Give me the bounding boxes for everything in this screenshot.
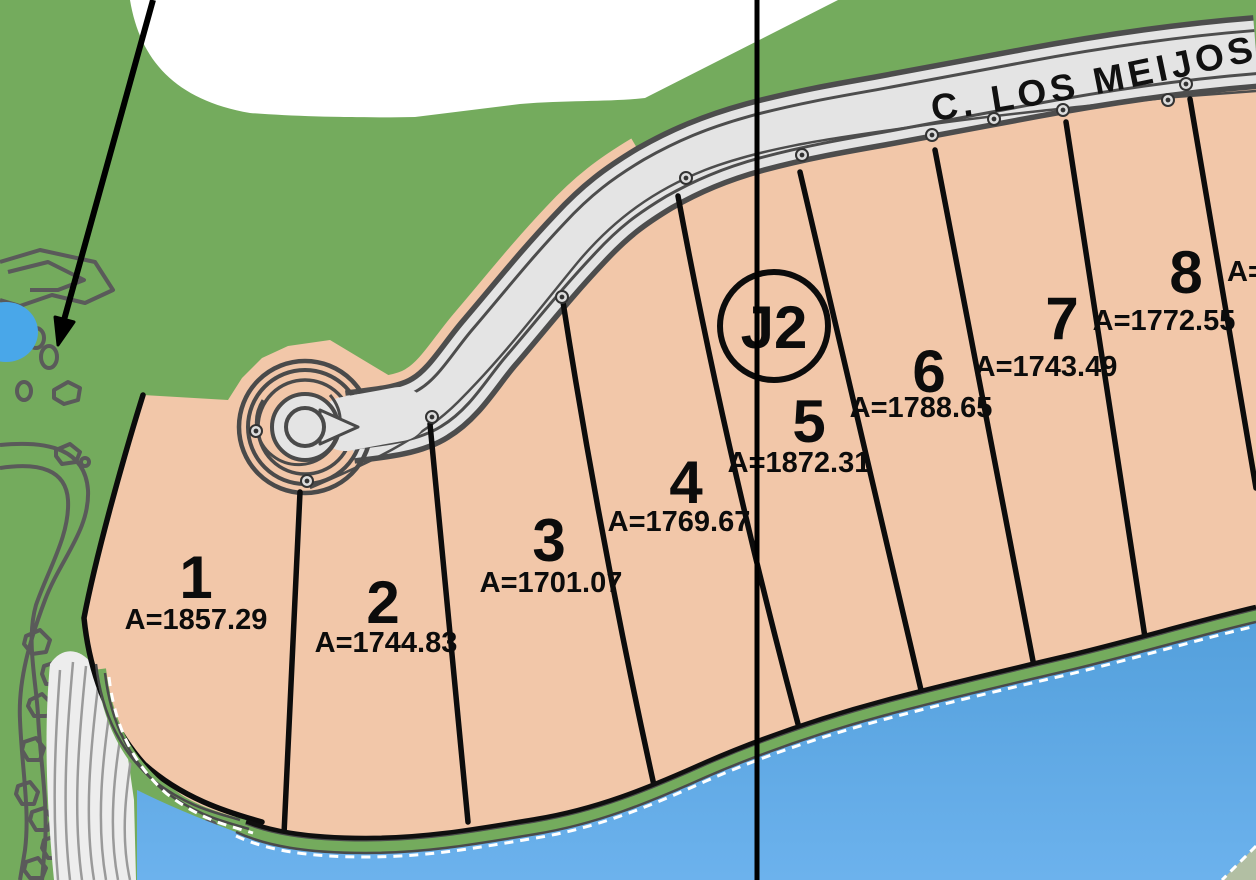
survey-monument-icon bbox=[680, 172, 692, 184]
svg-text:A=1743.49: A=1743.49 bbox=[975, 351, 1118, 383]
svg-text:A=1772.55: A=1772.55 bbox=[1093, 305, 1236, 337]
survey-monument-icon bbox=[556, 291, 568, 303]
svg-text:7: 7 bbox=[1045, 285, 1078, 352]
svg-text:1: 1 bbox=[179, 544, 212, 611]
survey-monument-icon bbox=[301, 475, 313, 487]
offscreen-parcel-area-label: A= bbox=[1227, 256, 1256, 288]
survey-monument-icon bbox=[1162, 94, 1174, 106]
site-plan-map: C. LOS MEIJOS bbox=[0, 0, 1256, 880]
svg-text:A=1744.83: A=1744.83 bbox=[315, 627, 458, 659]
svg-text:A=1769.67: A=1769.67 bbox=[608, 506, 751, 538]
svg-text:A=1857.29: A=1857.29 bbox=[125, 604, 268, 636]
survey-monument-icon bbox=[1057, 104, 1069, 116]
survey-monument-icon bbox=[426, 411, 438, 423]
svg-text:2: 2 bbox=[366, 569, 399, 636]
survey-monument-icon bbox=[1180, 78, 1192, 90]
svg-text:A=1788.65: A=1788.65 bbox=[850, 392, 993, 424]
svg-text:A=1701.07: A=1701.07 bbox=[480, 567, 623, 599]
survey-monument-icon bbox=[250, 425, 262, 437]
svg-text:3: 3 bbox=[532, 507, 565, 574]
survey-monument-icon bbox=[988, 113, 1000, 125]
block-badge-label: J2 bbox=[741, 294, 808, 361]
svg-text:A=1872.31: A=1872.31 bbox=[728, 447, 871, 479]
svg-text:8: 8 bbox=[1169, 239, 1202, 306]
survey-monument-icon bbox=[796, 149, 808, 161]
survey-monument-icon bbox=[926, 129, 938, 141]
svg-text:5: 5 bbox=[792, 388, 825, 455]
